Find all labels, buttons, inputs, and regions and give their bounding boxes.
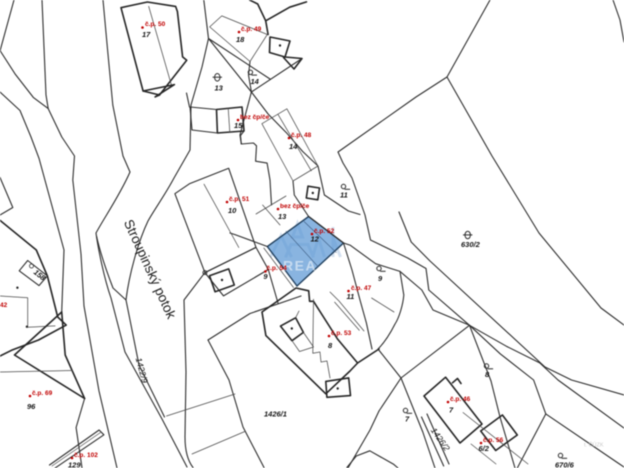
svg-text:t. ČÚZK: t. ČÚZK	[584, 442, 604, 449]
svg-text:630/2: 630/2	[461, 240, 481, 249]
svg-text:670/6: 670/6	[555, 461, 575, 468]
svg-text:129: 129	[68, 461, 81, 468]
svg-text:11: 11	[347, 292, 355, 301]
svg-text:14: 14	[251, 77, 260, 86]
svg-text:bez čp/če: bez čp/če	[240, 114, 270, 121]
svg-text:č.p. 51: č.p. 51	[229, 196, 250, 203]
svg-text:č.p. 56: č.p. 56	[483, 437, 504, 444]
svg-text:11: 11	[340, 191, 348, 200]
svg-text:1426/1: 1426/1	[264, 410, 287, 419]
svg-text:č.p. 47: č.p. 47	[351, 285, 372, 292]
svg-text:42: 42	[0, 302, 8, 309]
svg-text:13: 13	[215, 84, 224, 93]
svg-text:č.p. 50: č.p. 50	[145, 21, 166, 28]
svg-text:č.p. 54: č.p. 54	[267, 265, 288, 272]
svg-text:13: 13	[278, 212, 287, 221]
svg-text:č.p. 46: č.p. 46	[450, 396, 471, 403]
svg-text:15: 15	[234, 121, 243, 130]
svg-text:96: 96	[27, 402, 36, 411]
svg-text:10: 10	[228, 206, 237, 215]
svg-text:17: 17	[142, 30, 151, 39]
svg-text:14: 14	[289, 142, 298, 151]
svg-text:18: 18	[236, 35, 245, 44]
svg-text:č.p. 102: č.p. 102	[74, 452, 98, 459]
svg-text:č.p. 53: č.p. 53	[331, 330, 352, 337]
svg-text:6/2: 6/2	[479, 444, 490, 453]
svg-text:č.p. 69: č.p. 69	[32, 390, 53, 397]
svg-text:12: 12	[311, 235, 320, 244]
svg-text:č.p. 49: č.p. 49	[241, 26, 262, 33]
svg-text:bez čp/če: bez čp/če	[280, 203, 310, 210]
svg-text:č.p. 48: č.p. 48	[291, 132, 312, 139]
